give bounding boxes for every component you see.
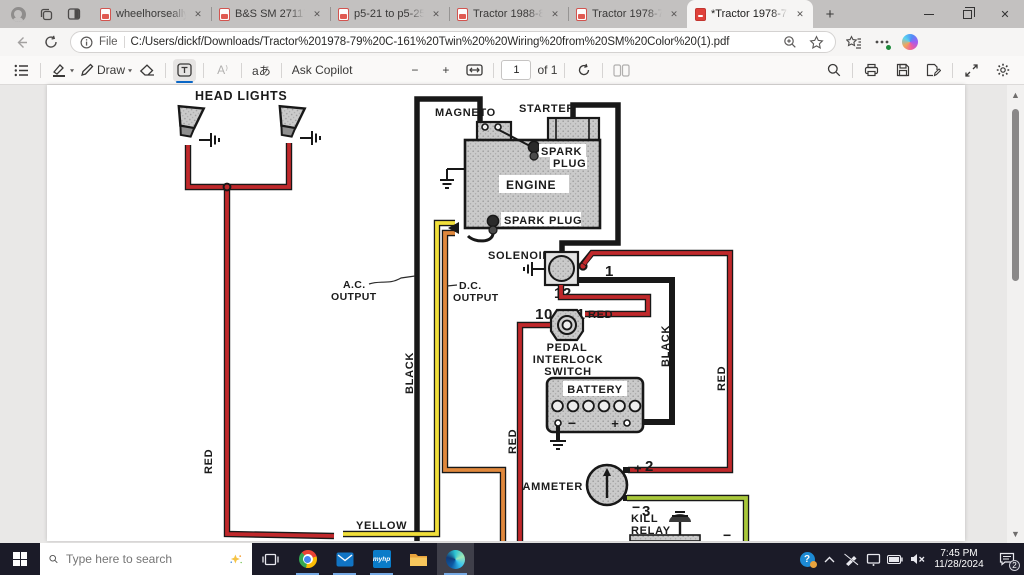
pdf-file-icon: [219, 8, 230, 21]
wiring-diagram: HEAD LIGHTS: [47, 85, 965, 541]
ac-output-label: A.C.: [343, 279, 366, 291]
extensions-badge: [885, 44, 892, 51]
zoom-out-button[interactable]: −: [403, 59, 426, 82]
solenoid-label: SOLENOID: [488, 250, 551, 262]
zoom-in-button[interactable]: +: [434, 59, 457, 82]
battery-icon[interactable]: [884, 543, 906, 575]
table-of-contents-icon[interactable]: [10, 59, 33, 82]
tab-label: wheelhorseallyears.p: [116, 8, 186, 20]
rotate-icon[interactable]: [572, 59, 595, 82]
stylus-icon[interactable]: [840, 543, 862, 575]
chrome-icon[interactable]: [289, 543, 326, 575]
page-count-label: of 1: [537, 63, 557, 77]
edge-browser-window: wheelhorseallyears.p ✕ B&S SM 271172 Twi…: [0, 0, 1024, 575]
tab-strip: wheelhorseallyears.p ✕ B&S SM 271172 Twi…: [0, 0, 1024, 28]
help-badge: [810, 561, 817, 568]
notification-center-icon[interactable]: 2: [990, 543, 1024, 575]
tab-close-button[interactable]: ✕: [191, 7, 205, 21]
eraser-icon[interactable]: [135, 59, 158, 82]
wire-label-red-after-11: RED: [588, 309, 613, 321]
kill-relay-minus: −: [723, 527, 731, 541]
wire-label-black-right: BLACK: [660, 325, 672, 367]
refresh-button[interactable]: [40, 31, 62, 53]
start-button[interactable]: [0, 543, 40, 575]
kill-relay-label: KILL: [631, 513, 658, 525]
file-explorer-icon[interactable]: [400, 543, 437, 575]
annotation-2: 2: [645, 458, 654, 475]
help-icon[interactable]: ?: [796, 543, 818, 575]
spark-plug-bottom-label: SPARK PLUG: [504, 215, 582, 227]
volume-muted-icon[interactable]: [906, 543, 928, 575]
divider: [241, 63, 242, 78]
tab-close-button[interactable]: ✕: [793, 7, 807, 21]
pdf-file-icon: [100, 8, 111, 21]
kill-relay: KILL RELAY −: [630, 512, 731, 541]
search-icon: [49, 552, 58, 566]
tab-bs-sm-271172[interactable]: B&S SM 271172 Twi ✕: [211, 0, 330, 28]
page-number-input[interactable]: [501, 60, 531, 80]
tab-close-button[interactable]: ✕: [667, 7, 681, 21]
mail-icon[interactable]: [326, 543, 363, 575]
draw-button[interactable]: Draw ▾: [77, 59, 135, 82]
save-icon[interactable]: [891, 59, 914, 82]
file-scheme-label: File: [99, 36, 118, 48]
svg-text:OUTPUT: OUTPUT: [331, 291, 377, 303]
print-icon[interactable]: [860, 59, 883, 82]
divider: [165, 63, 166, 78]
svg-text:INTERLOCK: INTERLOCK: [533, 354, 603, 366]
pdf-viewport: HEAD LIGHTS: [0, 85, 1024, 543]
tab-close-button[interactable]: ✕: [548, 7, 562, 21]
ammeter-label: AMMETER: [522, 481, 583, 493]
divider: [493, 63, 494, 78]
windows-taskbar: myhp ? 7:45 PM 11/28/2024: [0, 543, 1024, 575]
task-view-icon[interactable]: [252, 543, 289, 575]
favorites-hub-icon[interactable]: [844, 32, 864, 52]
dc-output-label: D.C.: [459, 280, 482, 292]
divider: [952, 63, 953, 78]
battery-minus: −: [568, 415, 576, 431]
translate-icon[interactable]: aあ: [249, 59, 274, 82]
windows-logo-icon: [13, 552, 27, 566]
spark-plug-top-label: SPARK: [541, 146, 582, 158]
battery: BATTERY − +: [547, 378, 643, 449]
search-icon[interactable]: [822, 59, 845, 82]
ask-copilot-button[interactable]: Ask Copilot: [289, 59, 356, 82]
highlighter-icon[interactable]: ▾: [48, 59, 77, 82]
ground-symbol: [440, 169, 465, 188]
scroll-thumb[interactable]: [1012, 109, 1019, 281]
tray-expand-chevron[interactable]: [818, 543, 840, 575]
divider: [281, 63, 282, 78]
tab-actions-icon[interactable]: [60, 2, 88, 26]
myhp-icon[interactable]: myhp: [363, 543, 400, 575]
read-aloud-icon: A⁾: [211, 59, 234, 82]
svg-text:SWITCH: SWITCH: [544, 366, 592, 378]
tab-tractor-1978-79-active[interactable]: *Tractor 1978-79 C-1 ✕: [687, 0, 813, 28]
date-label: 11/28/2024: [928, 559, 990, 571]
divider: [564, 63, 565, 78]
pedal-label: PEDAL: [547, 342, 588, 354]
taskbar-search[interactable]: [40, 543, 252, 575]
pdf-file-icon: [576, 8, 587, 21]
workspaces-icon[interactable]: [32, 2, 60, 26]
tab-p5-21-to-p5-25[interactable]: p5-21 to p5-25 199 ✕: [330, 0, 449, 28]
tab-wheelhorseallyears[interactable]: wheelhorseallyears.p ✕: [92, 0, 211, 28]
divider: [852, 63, 853, 78]
divider: [124, 36, 125, 48]
fullscreen-icon[interactable]: [960, 59, 983, 82]
chevron-down-icon: ▾: [70, 66, 74, 73]
chevron-down-icon: ▾: [128, 66, 132, 73]
avatar-icon: [11, 7, 26, 22]
close-button[interactable]: ✕: [986, 0, 1024, 28]
ground-symbol: [199, 131, 320, 147]
draw-pen-icon: [80, 63, 94, 77]
svg-text:PLUG: PLUG: [553, 158, 586, 170]
text-select-tool[interactable]: [173, 59, 196, 82]
tab-close-button[interactable]: ✕: [310, 7, 324, 21]
scroll-up-button[interactable]: ▲: [1010, 89, 1021, 100]
magneto-label: MAGNETO: [435, 107, 496, 119]
tab-label: p5-21 to p5-25 199: [354, 8, 424, 20]
fit-width-icon[interactable]: [463, 59, 486, 82]
clock[interactable]: 7:45 PM 11/28/2024: [928, 548, 990, 571]
pdf-file-icon: [457, 8, 468, 21]
wire-label-black-left: BLACK: [404, 352, 416, 394]
cast-icon[interactable]: [862, 543, 884, 575]
favorite-star-icon[interactable]: [806, 32, 826, 52]
draw-label: Draw: [97, 63, 125, 77]
page-info-icon[interactable]: [80, 36, 93, 49]
pdf-file-icon: [338, 8, 349, 21]
head-lights-label: HEAD LIGHTS: [195, 89, 287, 103]
ground-symbol: [550, 441, 566, 449]
battery-label: BATTERY: [567, 384, 623, 396]
notification-badge: 2: [1009, 560, 1020, 571]
search-input[interactable]: [66, 552, 221, 566]
divider: [203, 63, 204, 78]
wire-label-red-mid: RED: [507, 429, 519, 454]
tab-close-button[interactable]: ✕: [429, 7, 443, 21]
starter-label: STARTER: [519, 103, 575, 115]
minimize-icon: [924, 14, 934, 15]
tab-label: *Tractor 1978-79 C-1: [711, 8, 788, 20]
battery-plus: +: [611, 416, 619, 431]
restore-button[interactable]: [948, 0, 986, 28]
copilot-icon[interactable]: [900, 32, 920, 52]
copilot-sparkle-icon: [229, 550, 243, 568]
ground-symbol: [524, 262, 545, 276]
address-bar: File C:/Users/dickf/Downloads/Tractor%20…: [0, 28, 1024, 56]
svg-text:OUTPUT: OUTPUT: [453, 292, 499, 304]
wire-label-red-right: RED: [716, 366, 728, 391]
ammeter-plus: +: [634, 461, 642, 476]
scroll-down-button[interactable]: ▼: [1010, 528, 1021, 539]
tab-tractor-1978-79[interactable]: Tractor 1978-79 C-1 ✕: [568, 0, 687, 28]
restore-icon: [963, 10, 972, 19]
headlights: HEAD LIGHTS: [174, 89, 334, 536]
engine-label: ENGINE: [506, 178, 556, 192]
scrollbar[interactable]: ▲ ▼: [1007, 85, 1024, 543]
wire-label-red-left: RED: [203, 449, 215, 474]
zoom-page-icon[interactable]: [780, 32, 800, 52]
divider: [602, 63, 603, 78]
engine-block: MAGNETO STARTER SPARK PLUG ENGINE SPARK …: [435, 103, 618, 253]
extensions-more-icon[interactable]: [872, 32, 892, 52]
pdf-file-icon: [695, 8, 706, 21]
edge-icon[interactable]: [437, 543, 474, 575]
page-view-icon: [610, 59, 633, 82]
pdf-toolbar: ▾ Draw ▾ A⁾ aあ Ask Copilot − + of 1: [0, 56, 1024, 85]
profile-avatar[interactable]: [4, 2, 32, 26]
tab-tractor-1988-89[interactable]: Tractor 1988-89 208 ✕: [449, 0, 568, 28]
tab-label: B&S SM 271172 Twi: [235, 8, 305, 20]
new-tab-button[interactable]: +: [817, 1, 843, 27]
back-button[interactable]: [10, 31, 32, 53]
tab-label: Tractor 1978-79 C-1: [592, 8, 662, 20]
divider: [40, 63, 41, 78]
pdf-page: HEAD LIGHTS: [47, 85, 965, 541]
save-as-icon[interactable]: [922, 59, 945, 82]
settings-gear-icon[interactable]: [991, 59, 1014, 82]
time-label: 7:45 PM: [928, 548, 990, 560]
url-field[interactable]: File C:/Users/dickf/Downloads/Tractor%20…: [70, 31, 836, 53]
url-text: C:/Users/dickf/Downloads/Tractor%201978-…: [131, 36, 774, 48]
tab-label: Tractor 1988-89 208: [473, 8, 543, 20]
minimize-button[interactable]: [910, 0, 948, 28]
wire-label-yellow: YELLOW: [356, 520, 407, 532]
